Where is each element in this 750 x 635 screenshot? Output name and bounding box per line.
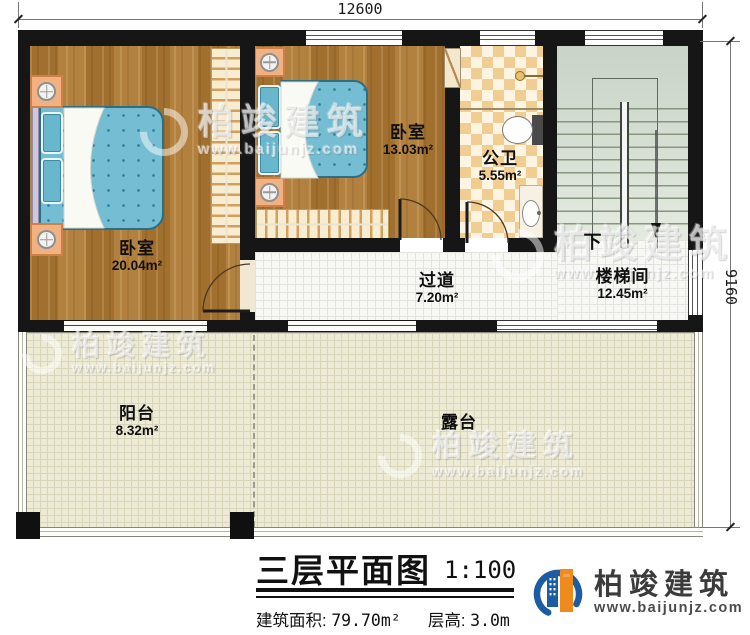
- window: [585, 30, 663, 46]
- toilet-bowl: [502, 116, 533, 144]
- room-label-balcony: 阳台 8.32m²: [92, 405, 182, 439]
- page-title: 三层平面图: [256, 544, 431, 592]
- room-label-bedroom-2: 卧室 13.03m²: [363, 124, 453, 158]
- wall-left: [18, 46, 30, 332]
- brand-logo-icon: [532, 562, 586, 624]
- window: [497, 320, 657, 332]
- nightstand: [254, 47, 285, 77]
- floor-height-label: 层高:: [428, 612, 466, 630]
- room-area: 5.55m²: [456, 169, 544, 184]
- room-name: 卧室: [92, 240, 182, 259]
- pillow: [41, 158, 63, 204]
- room-area: 7.20m²: [392, 291, 482, 306]
- wall-stub: [443, 238, 465, 252]
- built-area-label: 建筑面积:: [256, 612, 327, 630]
- lamp-icon: [37, 230, 56, 249]
- shower-partition: [460, 108, 543, 110]
- dim-line-top: [18, 19, 703, 20]
- room-label-bedroom-1: 卧室 20.04m²: [92, 240, 182, 274]
- room-name: 公卫: [456, 150, 544, 169]
- dimension-top: 12600: [310, 0, 410, 18]
- window: [480, 30, 535, 46]
- brand-text: 柏竣建筑 www.baijunjz.com: [594, 570, 743, 616]
- nightstand: [30, 75, 63, 108]
- door-threshold: [240, 260, 255, 312]
- wardrobe: [211, 48, 242, 244]
- room-name: 过道: [392, 272, 482, 291]
- balcony-left-railing: [18, 332, 27, 537]
- bed-headboard: [32, 104, 39, 232]
- sliding-door: [288, 321, 416, 331]
- pillow: [258, 131, 281, 175]
- shower-arm: [524, 75, 543, 77]
- brand-logo: 柏竣建筑 www.baijunjz.com: [532, 562, 743, 624]
- bottom-railing: [18, 527, 703, 537]
- wall-stub: [240, 312, 255, 320]
- wardrobe: [256, 209, 389, 240]
- stair-direction-label: 下: [578, 233, 608, 253]
- stair-direction-text: 下: [578, 233, 608, 253]
- pillow: [258, 85, 281, 129]
- title-underline-thin: [256, 596, 514, 598]
- toilet-icon: [532, 115, 543, 145]
- room-label-stairwell: 楼梯间 12.45m²: [575, 268, 670, 302]
- title-underline-thick: [256, 588, 514, 592]
- dim-extension-line: [18, 2, 19, 28]
- room-label-hallway: 过道 7.20m²: [392, 272, 482, 306]
- room-area: 20.04m²: [92, 259, 182, 274]
- lamp-icon: [37, 82, 56, 101]
- nightstand: [254, 177, 285, 207]
- window: [688, 250, 703, 315]
- nightstand: [30, 223, 63, 256]
- wall-bathroom-stairwell: [543, 46, 557, 252]
- drawing-scale: 1:100: [444, 556, 516, 584]
- dim-extension-line: [700, 41, 740, 42]
- window: [306, 30, 402, 46]
- room-label-terrace: 露台: [414, 414, 504, 433]
- wall-bedroom1-bedroom2: [240, 46, 255, 260]
- pillow: [41, 112, 63, 154]
- title-info-line: 建筑面积: 79.70m² 层高: 3.0m: [256, 607, 510, 631]
- brand-url: www.baijunjz.com: [594, 600, 743, 616]
- lamp-icon: [260, 53, 279, 72]
- column: [16, 512, 40, 539]
- room-name: 露台: [414, 414, 504, 433]
- sliding-door: [64, 321, 207, 331]
- faucet-dot: [537, 211, 541, 215]
- room-name: 卧室: [363, 124, 453, 143]
- brand-name: 柏竣建筑: [594, 570, 743, 600]
- bed: [280, 80, 368, 178]
- dim-extension-line: [702, 2, 703, 28]
- room-label-bathroom: 公卫 5.55m²: [456, 150, 544, 184]
- column: [230, 512, 254, 539]
- room-name: 楼梯间: [575, 268, 670, 287]
- wall-bedroom2-hallway: [255, 238, 400, 252]
- balcony-terrace-divider: [253, 335, 255, 527]
- room-name: 阳台: [92, 405, 182, 424]
- terrace-right-railing: [694, 332, 703, 537]
- duct-shaft: [444, 48, 461, 88]
- dim-extension-line: [700, 527, 740, 528]
- room-area: 8.32m²: [92, 424, 182, 439]
- floor-height-value: 3.0m: [470, 611, 510, 630]
- room-area: 13.03m²: [363, 143, 453, 158]
- dimension-right: 9160: [722, 252, 740, 322]
- floor-plan-canvas: 柏竣建筑 www.baijunjz.com 柏竣建筑 www.baijunjz.…: [0, 0, 750, 635]
- built-area-value: 79.70m²: [331, 611, 401, 630]
- lamp-icon: [260, 183, 279, 202]
- stair-handrail: [620, 102, 629, 248]
- room-area: 12.45m²: [575, 287, 670, 302]
